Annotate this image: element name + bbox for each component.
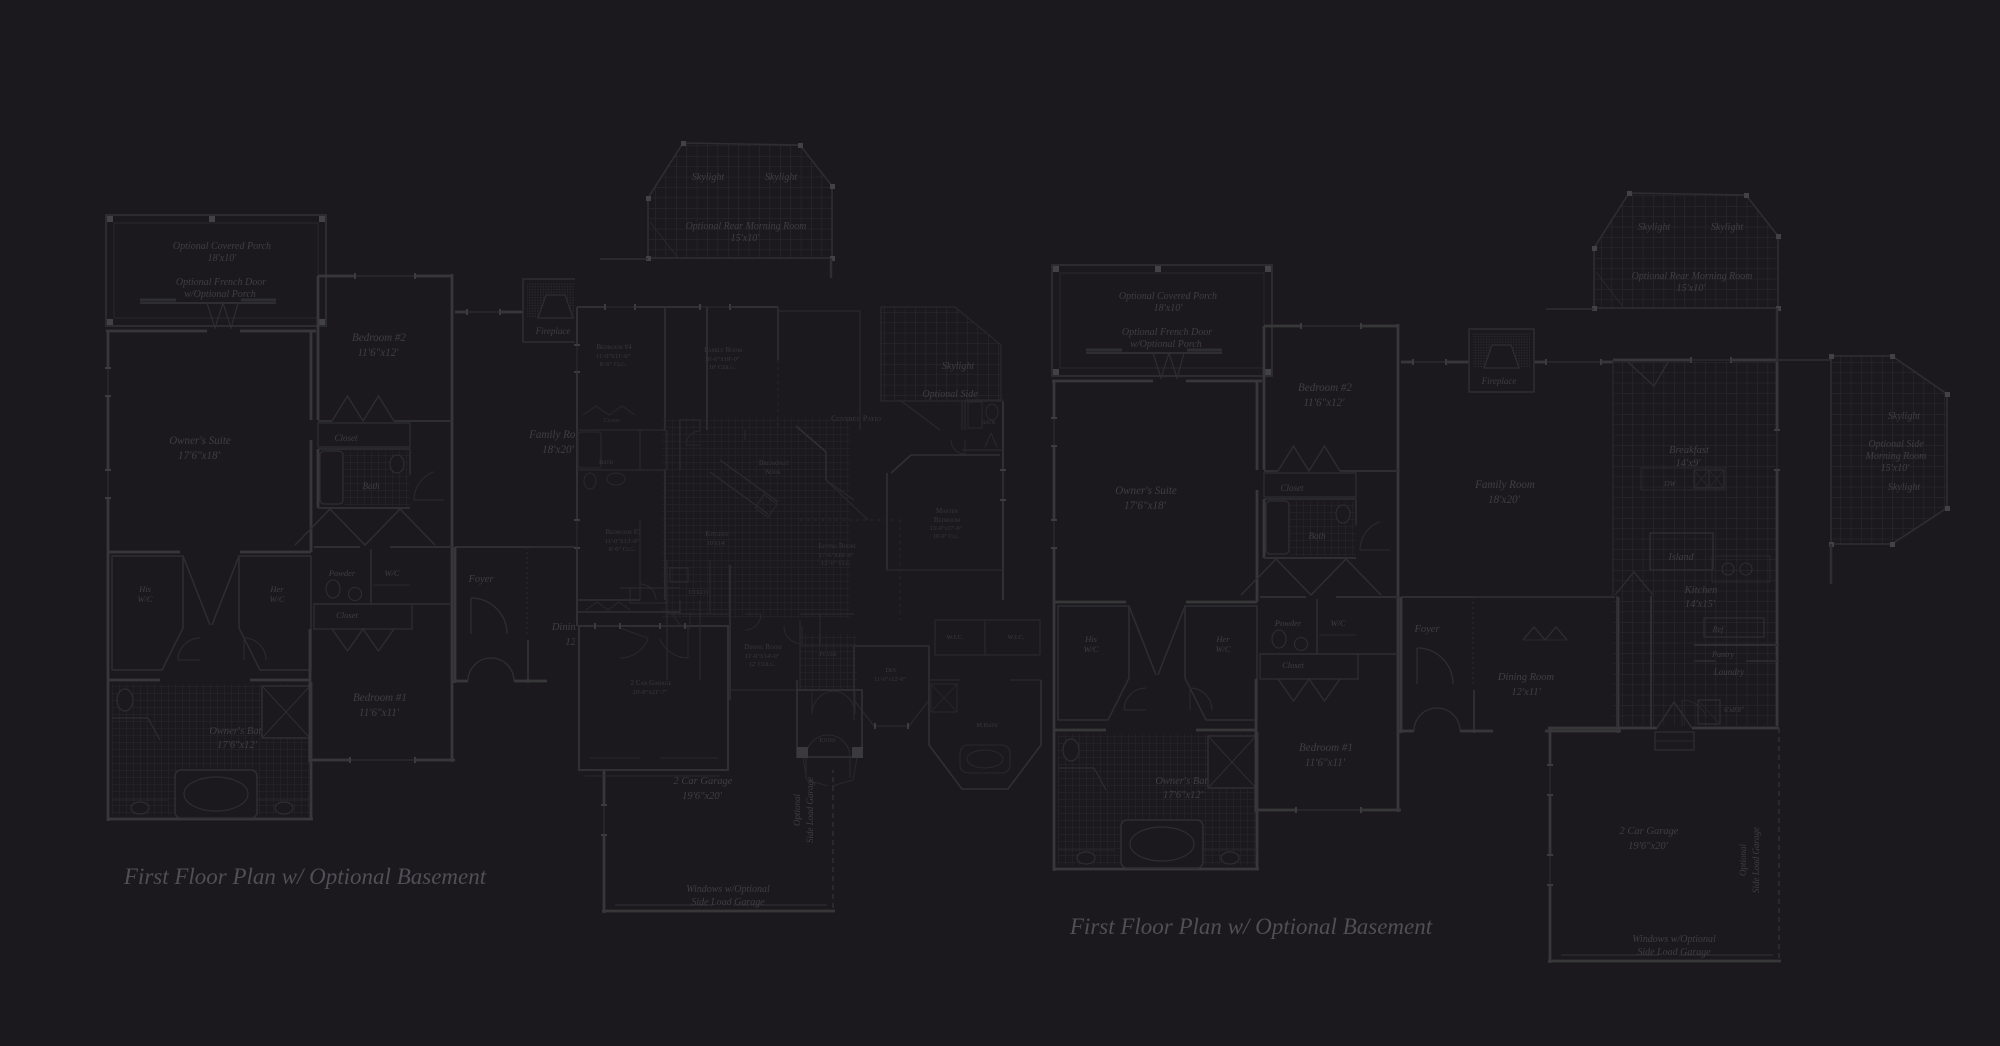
svg-text:2 Car Garage: 2 Car Garage	[674, 776, 733, 787]
svg-text:DW: DW	[1663, 479, 1676, 488]
svg-text:W.I.C.: W.I.C.	[947, 634, 964, 641]
svg-text:17'6"x12': 17'6"x12'	[1163, 790, 1204, 801]
svg-text:8'-0" Clg.: 8'-0" Clg.	[600, 361, 627, 368]
svg-text:17'6"x18': 17'6"x18'	[1124, 500, 1167, 512]
svg-text:11'6"x11': 11'6"x11'	[1305, 757, 1346, 769]
svg-text:12'x11': 12'x11'	[1511, 687, 1541, 698]
svg-text:W/C: W/C	[269, 594, 284, 604]
svg-text:14'x9': 14'x9'	[1676, 458, 1702, 469]
svg-text:Foyer: Foyer	[467, 574, 494, 585]
svg-text:Closet: Closet	[336, 610, 358, 620]
svg-text:W.I.C.: W.I.C.	[1008, 634, 1025, 641]
svg-text:Island: Island	[1668, 552, 1695, 563]
svg-text:Bedroom #2: Bedroom #2	[352, 332, 406, 344]
svg-text:19'6"x20': 19'6"x20'	[682, 791, 723, 802]
svg-text:Owner's Bath: Owner's Bath	[1155, 776, 1212, 787]
svg-text:11'6"x11': 11'6"x11'	[359, 707, 400, 719]
svg-text:Master: Master	[936, 507, 959, 515]
svg-text:10'-0" Clg.: 10'-0" Clg.	[933, 534, 960, 540]
svg-text:2 Car Garage: 2 Car Garage	[1620, 826, 1679, 837]
svg-text:17'6"x12': 17'6"x12'	[217, 740, 258, 751]
svg-text:12' Ceilg.: 12' Ceilg.	[749, 661, 776, 668]
svg-text:13'-0"x17'-0": 13'-0"x17'-0"	[930, 526, 962, 532]
svg-text:w/Optional Porch: w/Optional Porch	[1130, 339, 1202, 350]
svg-text:Pantry: Pantry	[1711, 650, 1734, 659]
svg-text:11'6"x12': 11'6"x12'	[1303, 397, 1345, 409]
svg-text:15'x10': 15'x10'	[1677, 283, 1707, 294]
svg-text:First Floor Plan w/ Optional: First Floor Plan w/ Optional Basement	[1069, 914, 1433, 939]
svg-text:10' Ceilg.: 10' Ceilg.	[709, 364, 736, 371]
svg-text:Windows w/Optional: Windows w/Optional	[1632, 934, 1716, 945]
svg-text:Optional Side: Optional Side	[922, 389, 978, 400]
svg-text:8'-0" Clg.: 8'-0" Clg.	[609, 546, 636, 553]
svg-text:15'x10': 15'x10'	[1881, 463, 1911, 474]
svg-text:20'-8"x21'-7": 20'-8"x21'-7"	[632, 689, 667, 696]
svg-text:Family Room: Family Room	[704, 346, 742, 354]
svg-text:17'6"x18': 17'6"x18'	[178, 450, 221, 462]
svg-text:Bedroom #4: Bedroom #4	[596, 343, 632, 351]
svg-text:W/C: W/C	[137, 594, 152, 604]
svg-text:Optional Side: Optional Side	[1868, 439, 1924, 450]
svg-text:Bedroom #1: Bedroom #1	[353, 692, 407, 704]
svg-text:Den: Den	[885, 667, 897, 674]
svg-text:Bedroom #3: Bedroom #3	[605, 528, 641, 536]
svg-text:11'-0"x13'-0": 11'-0"x13'-0"	[605, 538, 640, 545]
svg-text:Closet: Closet	[1282, 660, 1304, 670]
svg-text:16'-0"x19'-0": 16'-0"x19'-0"	[704, 356, 739, 363]
svg-text:Side Load Garage: Side Load Garage	[1637, 947, 1711, 958]
svg-text:Skylight: Skylight	[1711, 222, 1743, 233]
svg-text:Fireplace: Fireplace	[535, 326, 571, 336]
svg-text:His: His	[1084, 634, 1098, 644]
svg-text:W/C: W/C	[384, 568, 399, 578]
svg-text:Bath: Bath	[599, 459, 613, 466]
svg-text:Bedroom #1: Bedroom #1	[1299, 742, 1353, 754]
svg-text:Optional: Optional	[1738, 844, 1748, 877]
svg-text:11'-0"x12'-0": 11'-0"x12'-0"	[874, 677, 906, 683]
svg-text:Powder: Powder	[1274, 618, 1302, 628]
svg-text:2 Car Garage: 2 Car Garage	[631, 679, 672, 687]
svg-text:Optional French Door: Optional French Door	[176, 277, 266, 288]
svg-text:Family Room: Family Room	[1474, 479, 1535, 491]
svg-text:Closet: Closet	[604, 418, 621, 424]
svg-text:11'6"x12': 11'6"x12'	[357, 347, 399, 359]
svg-text:Morning Room: Morning Room	[1865, 451, 1927, 462]
svg-text:Optional Covered Porch: Optional Covered Porch	[173, 241, 271, 252]
svg-text:Fireplace: Fireplace	[1481, 376, 1517, 386]
svg-text:Bedroom: Bedroom	[934, 516, 961, 524]
svg-text:Ref: Ref	[1712, 625, 1725, 634]
svg-text:6'x8'8": 6'x8'8"	[1724, 706, 1744, 714]
svg-text:Entry: Entry	[819, 737, 837, 744]
svg-text:Side Load Garage: Side Load Garage	[1751, 827, 1761, 893]
svg-text:W/C: W/C	[1330, 618, 1345, 628]
svg-text:Windows w/Optional: Windows w/Optional	[686, 884, 770, 895]
svg-text:18'x10': 18'x10'	[1154, 303, 1184, 314]
svg-text:First Floor Plan w/ Optional: First Floor Plan w/ Optional Basement	[123, 864, 487, 889]
svg-text:Owner's Suite: Owner's Suite	[169, 435, 231, 447]
svg-text:14'x15': 14'x15'	[1685, 599, 1716, 610]
svg-text:Optional Rear Morning Room: Optional Rear Morning Room	[1632, 271, 1753, 282]
svg-text:Breakfast: Breakfast	[1669, 445, 1710, 456]
svg-text:Optional Rear Morning Room: Optional Rear Morning Room	[686, 221, 807, 232]
svg-text:Dining Room: Dining Room	[744, 643, 782, 651]
svg-text:Skylight: Skylight	[1888, 482, 1920, 493]
svg-text:Closet: Closet	[334, 433, 358, 443]
svg-text:Skylight: Skylight	[692, 172, 724, 183]
svg-text:M.Bath: M.Bath	[976, 722, 998, 729]
svg-text:Owner's Bath: Owner's Bath	[209, 726, 266, 737]
svg-text:Optional Covered Porch: Optional Covered Porch	[1119, 291, 1217, 302]
svg-text:Optional: Optional	[792, 794, 802, 827]
svg-text:Her: Her	[1215, 634, 1230, 644]
svg-text:Foyer: Foyer	[1413, 624, 1440, 635]
svg-text:His: His	[138, 584, 152, 594]
svg-text:Skylight: Skylight	[765, 172, 797, 183]
svg-text:Bath: Bath	[1309, 531, 1326, 541]
svg-text:Side Load Garage: Side Load Garage	[805, 777, 815, 843]
svg-text:11'-0"x14'-0": 11'-0"x14'-0"	[745, 653, 780, 660]
svg-text:Dining Room: Dining Room	[1497, 672, 1555, 683]
svg-text:Optional French Door: Optional French Door	[1122, 327, 1212, 338]
svg-text:Bath: Bath	[363, 481, 380, 491]
svg-text:Skylight: Skylight	[1888, 411, 1920, 422]
svg-text:11'-0"x11'-6": 11'-0"x11'-6"	[596, 353, 631, 360]
svg-text:W/C: W/C	[1083, 644, 1098, 654]
svg-text:18'x20': 18'x20'	[1488, 494, 1520, 506]
svg-text:Her: Her	[269, 584, 284, 594]
svg-text:Skylight: Skylight	[942, 361, 974, 372]
svg-text:Owner's Suite: Owner's Suite	[1115, 485, 1177, 497]
svg-text:18'x10': 18'x10'	[208, 253, 238, 264]
svg-text:Closet: Closet	[1280, 483, 1304, 493]
svg-text:18'x20': 18'x20'	[542, 444, 574, 456]
svg-text:15'x10': 15'x10'	[731, 233, 761, 244]
svg-text:Side Load Garage: Side Load Garage	[691, 897, 765, 908]
svg-text:Kitchen: Kitchen	[1684, 585, 1718, 596]
svg-text:w/Optional Porch: w/Optional Porch	[184, 289, 256, 300]
svg-text:Laundry: Laundry	[1713, 667, 1745, 677]
svg-text:W/C: W/C	[1215, 644, 1230, 654]
svg-text:Skylight: Skylight	[1638, 222, 1670, 233]
svg-text:Bedroom #2: Bedroom #2	[1298, 382, 1352, 394]
svg-text:19'6"x20': 19'6"x20'	[1628, 841, 1669, 852]
svg-text:Powder: Powder	[328, 568, 356, 578]
